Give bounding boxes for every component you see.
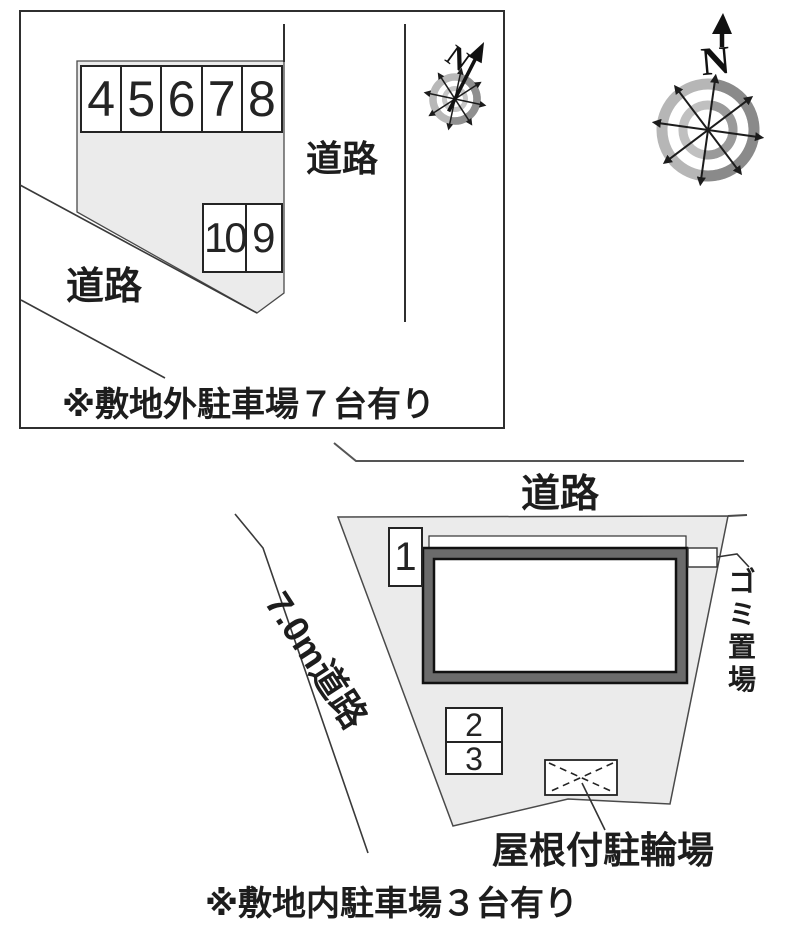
building-interior [434,559,676,672]
bicycle-parking-label: 屋根付駐輪場 [492,832,714,869]
offsite-note: ※敷地外駐車場７台有り [62,388,435,422]
parking-space-2: 2 [447,709,501,743]
garbage-area-label: ゴミ置場 [726,567,754,697]
parking-space-10: 10 [204,205,247,271]
parking-space-7: 7 [203,67,243,131]
plan-linework [0,0,800,940]
parking-space-8: 8 [243,67,281,131]
offsite-parking-row-upper: 4 5 6 7 8 [80,65,283,133]
site-road-label-top: 道路 [521,475,599,514]
parking-space-3: 3 [447,743,501,775]
site-plan-page: { "colors": { "line": "#2f2f2f", "lot_fi… [0,0,800,940]
parking-space-6: 6 [162,67,202,131]
offsite-parking-row-lower: 10 9 [202,203,283,273]
offsite-road-label-bottom: 道路 [66,268,142,306]
offsite-road-label-right: 道路 [306,141,378,177]
garbage-area-box [688,548,717,567]
main-compass-n-label: N [699,40,731,82]
parking-space-1: 1 [390,529,421,585]
parking-space-9: 9 [247,205,281,271]
garbage-leader-line [717,554,749,567]
site-parking-1: 1 [388,527,423,587]
building-eave-line [429,536,686,548]
bicycle-parking-box [545,760,617,795]
site-parking-23: 2 3 [445,707,503,775]
parking-space-5: 5 [122,67,162,131]
site-note: ※敷地内駐車場３台有り [205,887,578,921]
parking-space-4: 4 [82,67,122,131]
